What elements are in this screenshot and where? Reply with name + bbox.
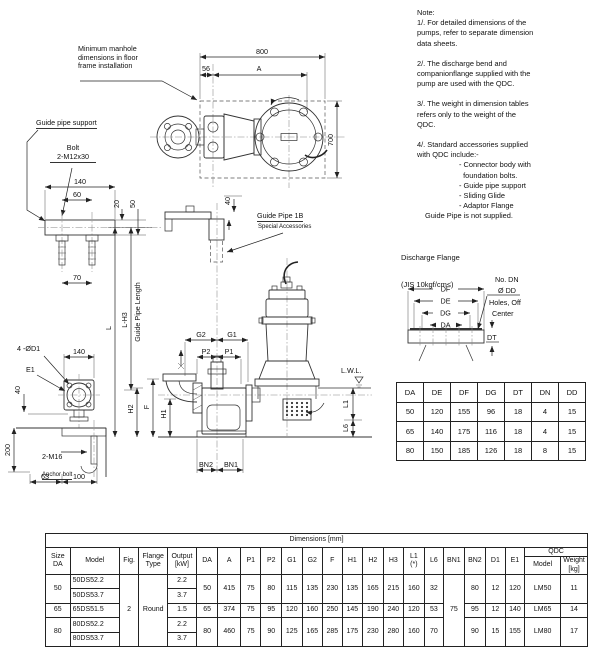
col-header: P1 — [240, 548, 261, 575]
cell: 185 — [451, 441, 478, 461]
col-header: A — [218, 548, 241, 575]
cell-model: 50DS52.2 — [70, 574, 119, 589]
col-header-output: Output [kW] — [168, 548, 197, 575]
cell: 165 — [363, 574, 384, 603]
dim-p2: P2 — [202, 347, 211, 356]
cell: 415 — [218, 574, 241, 603]
cell-output: 3.7 — [168, 589, 197, 604]
dim-200: 200 — [3, 444, 12, 456]
table-row: 50 50DS52.2 2 Round 2.2 50 415 75 80 115… — [46, 574, 588, 589]
cell: 80 — [397, 441, 424, 461]
cell: 250 — [323, 603, 343, 618]
cell: 120 — [505, 574, 525, 603]
cell: 75 — [240, 603, 261, 618]
guide-pipe-support-view: 140 60 70 20 50 — [38, 177, 162, 283]
col-header-model: Model — [70, 548, 119, 575]
dim-f: F — [142, 404, 151, 409]
cell-size: 80 — [46, 618, 71, 647]
col-header: DA — [196, 548, 218, 575]
dim-a: A — [257, 64, 262, 73]
cell: 175 — [342, 618, 363, 647]
dim-l: L — [104, 326, 113, 330]
cell: 285 — [323, 618, 343, 647]
col-header-size: Size DA — [46, 548, 71, 575]
col-header: H2 — [363, 548, 384, 575]
flange-dim-dg: DG — [440, 309, 451, 318]
col-header: BN1 — [444, 548, 465, 575]
cell: 374 — [218, 603, 241, 618]
flange-subtitle: (JIS 10kgf/cm≤) — [401, 280, 460, 289]
note-accessory-3: - Sliding Glide — [459, 191, 597, 201]
anchor-bolt-label: 2-M16 Anchor bolt — [34, 444, 72, 489]
cell-bn1: 75 — [444, 574, 465, 647]
cell: 80 — [261, 574, 282, 603]
cell: 240 — [383, 603, 404, 618]
col-header: G2 — [302, 548, 323, 575]
dim-40-plate: 40 — [13, 386, 22, 394]
cell-weight: 11 — [561, 574, 588, 603]
col-header-qdc-weight: Weight [kg] — [561, 557, 588, 575]
dim-h2: H2 — [126, 404, 135, 413]
flange-table: DA DE DF DG DT DN DD 50 120 155 96 18 4 … — [396, 382, 586, 461]
dim-bn1: BN1 — [224, 460, 238, 469]
cell-output: 1.5 — [168, 603, 197, 618]
cell: 50 — [196, 574, 218, 603]
cell: 135 — [342, 574, 363, 603]
cell: 120 — [404, 603, 425, 618]
cell: 230 — [323, 574, 343, 603]
plan-view: 800 56 A 700 — [150, 47, 345, 188]
col-header-qdc-model: Model — [525, 557, 561, 575]
flange-col-header: DN — [532, 383, 559, 403]
dim-l1: L1 — [341, 400, 350, 408]
lwl-label: L.W.L. — [341, 366, 361, 375]
cell: 95 — [261, 603, 282, 618]
guide-pipe-support-text: Guide pipe support — [36, 119, 97, 129]
cell-flange-type: Round — [139, 574, 168, 647]
dim-h1: H1 — [159, 409, 168, 418]
col-header: P2 — [261, 548, 282, 575]
col-header: F — [323, 548, 343, 575]
water-level: L.W.L. L1 L6 — [318, 366, 371, 437]
dim-800: 800 — [256, 47, 268, 56]
note-4: 4/. Standard accessories supplied with Q… — [417, 140, 597, 160]
cell: 140 — [505, 603, 525, 618]
flange-col-header: DE — [424, 383, 451, 403]
table-title-row: Dimensions [mm] — [46, 534, 588, 548]
dim-20: 20 — [112, 200, 121, 208]
cell: 75 — [240, 618, 261, 647]
guide-pipe-support-label: Guide pipe support — [36, 119, 97, 129]
cell: 155 — [505, 618, 525, 647]
note-3: 3/. The weight in dimension tables refer… — [417, 99, 597, 130]
cell: 4 — [532, 402, 559, 422]
dim-p1: P1 — [225, 347, 234, 356]
flange-dim-dt: DT — [487, 333, 497, 342]
cell: 80 — [464, 574, 486, 603]
flange-title-block: Discharge Flange (JIS 10kgf/cm≤) — [401, 235, 460, 307]
dim-50: 50 — [128, 200, 137, 208]
strainer-holes — [286, 402, 308, 416]
flange-table-row: 50 120 155 96 18 4 15 — [397, 402, 586, 422]
cell-size: 50 — [46, 574, 71, 603]
dim-140-support: 140 — [74, 177, 86, 186]
flange-note-line3: Holes, Off — [489, 298, 521, 307]
cell: 280 — [383, 618, 404, 647]
bolt-label: Bolt 2-M12x30 — [50, 144, 96, 163]
guide-pipe-1b-text: Guide Pipe 1B — [257, 212, 303, 222]
cell-model: 80DS53.7 — [70, 632, 119, 647]
cell: 160 — [404, 618, 425, 647]
flange-table-row: 65 140 175 116 18 4 15 — [397, 422, 586, 442]
cell: 160 — [302, 603, 323, 618]
dim-140-plate: 140 — [73, 347, 85, 356]
dim-g1: G1 — [227, 330, 237, 339]
flange-note-line1: No. DN — [495, 275, 519, 284]
dim-56: 56 — [202, 64, 210, 73]
dimensions-table: Dimensions [mm] Size DA Model Fig. Flang… — [45, 533, 588, 647]
cell: 65 — [196, 603, 218, 618]
cell: 126 — [478, 441, 505, 461]
note-accessory-1: - Connector body with foundation bolts. — [459, 160, 597, 180]
cell: 18 — [505, 441, 532, 461]
flange-col-header: DA — [397, 383, 424, 403]
cell: 12 — [486, 574, 506, 603]
cell: 190 — [363, 603, 384, 618]
col-header: H1 — [342, 548, 363, 575]
pump-side-view — [252, 258, 324, 436]
cell: 15 — [559, 422, 586, 442]
cell: 15 — [559, 402, 586, 422]
flange-col-header: DG — [478, 383, 505, 403]
cell: 8 — [532, 441, 559, 461]
dim-l6: L6 — [341, 424, 350, 432]
cell: 90 — [261, 618, 282, 647]
guide-pipe-length-label: Guide Pipe Length — [133, 282, 142, 342]
flange-table-row: 80 150 185 126 18 8 15 — [397, 441, 586, 461]
cell: 18 — [505, 422, 532, 442]
col-header: D1 — [486, 548, 506, 575]
four-od1-label: 4 -ØD1 — [17, 345, 40, 354]
cell-qdc-model: LM50 — [525, 574, 561, 603]
cell-model: 65DS51.5 — [70, 603, 119, 618]
manhole-note: Minimum manhole dimensions in floor fram… — [78, 45, 170, 71]
dim-l-h3: L-H3 — [120, 312, 129, 328]
table-title: Dimensions [mm] — [46, 534, 588, 548]
cell-model: 80DS52.2 — [70, 618, 119, 633]
dim-70: 70 — [73, 273, 81, 282]
cell-output: 2.2 — [168, 618, 197, 633]
cell: 18 — [505, 402, 532, 422]
cell: 116 — [478, 422, 505, 442]
cell-weight: 17 — [561, 618, 588, 647]
cell: 32 — [424, 574, 444, 603]
cell: 165 — [302, 618, 323, 647]
cell: 4 — [532, 422, 559, 442]
cell: 175 — [451, 422, 478, 442]
dim-g2: G2 — [196, 330, 206, 339]
table-header-row: Size DA Model Fig. Flange Type Output [k… — [46, 548, 588, 557]
cell: 460 — [218, 618, 241, 647]
cell: 120 — [424, 402, 451, 422]
cell-fig: 2 — [119, 574, 139, 647]
col-header-flange-type: Flange Type — [139, 548, 168, 575]
dim-40-pipe: 40 — [223, 197, 232, 205]
note-accessory-2: - Guide pipe support — [459, 181, 597, 191]
col-header: G1 — [282, 548, 303, 575]
cell: 70 — [424, 618, 444, 647]
note-2: 2/. The discharge bend and companionflan… — [417, 59, 597, 90]
cell: 115 — [282, 574, 303, 603]
special-accessories-label: Special Accessories — [258, 224, 311, 231]
flange-col-header: DD — [559, 383, 586, 403]
dim-100: 100 — [73, 472, 85, 481]
col-header-qdc: QDC — [525, 548, 588, 557]
cell: 160 — [404, 574, 425, 603]
notes-block: Note: 1/. For detailed dimensions of the… — [417, 8, 597, 222]
leader-lines — [27, 81, 283, 452]
cell-qdc-model: LM65 — [525, 603, 561, 618]
cell: 15 — [486, 618, 506, 647]
col-header-fig: Fig. — [119, 548, 139, 575]
cell-weight: 14 — [561, 603, 588, 618]
flange-col-header: DF — [451, 383, 478, 403]
cell: 90 — [464, 618, 486, 647]
cell: 15 — [559, 441, 586, 461]
cell: 75 — [240, 574, 261, 603]
anchor-bolt-text: Anchor bolt — [42, 472, 72, 481]
cell: 50 — [397, 402, 424, 422]
section-view: G2 G1 P2 P1 H2 F — [126, 330, 372, 473]
cell-size: 65 — [46, 603, 71, 618]
cell-model: 50DS53.7 — [70, 589, 119, 604]
cell: 80 — [196, 618, 218, 647]
cell: 120 — [282, 603, 303, 618]
note-1: 1/. For detailed dimensions of the pumps… — [417, 18, 597, 49]
dim-700: 700 — [326, 134, 335, 146]
col-header: L1 (*) — [404, 548, 425, 575]
cell: 12 — [486, 603, 506, 618]
flange-note-line2: Ø DD — [498, 286, 516, 295]
cell: 135 — [302, 574, 323, 603]
cell: 65 — [397, 422, 424, 442]
cell: 215 — [383, 574, 404, 603]
col-header: L6 — [424, 548, 444, 575]
col-header: E1 — [505, 548, 525, 575]
flange-table-header-row: DA DE DF DG DT DN DD — [397, 383, 586, 403]
cell: 230 — [363, 618, 384, 647]
cell: 145 — [342, 603, 363, 618]
guide-pipe-1b-label: Guide Pipe 1B — [257, 212, 303, 222]
cell: 150 — [424, 441, 451, 461]
dim-60: 60 — [73, 190, 81, 199]
note-footer: Guide Pipe is not supplied. — [425, 211, 597, 221]
dim-bn2: BN2 — [199, 460, 213, 469]
flange-note-line4: Center — [492, 309, 514, 318]
datasheet-page: 800 56 A 700 — [0, 0, 600, 660]
e1-label: E1 — [26, 366, 35, 375]
cell-output: 2.2 — [168, 574, 197, 589]
cell: 125 — [282, 618, 303, 647]
flange-title: Discharge Flange — [401, 253, 460, 262]
col-header: BN2 — [464, 548, 486, 575]
col-header: H3 — [383, 548, 404, 575]
cell: 96 — [478, 402, 505, 422]
note-accessory-4: - Adaptor Flange — [459, 201, 597, 211]
m16-text: 2-M16 — [42, 452, 62, 461]
cell: 95 — [464, 603, 486, 618]
cell: 140 — [424, 422, 451, 442]
cell: 53 — [424, 603, 444, 618]
cell-qdc-model: LM80 — [525, 618, 561, 647]
cell-output: 3.7 — [168, 632, 197, 647]
cell: 155 — [451, 402, 478, 422]
flange-col-header: DT — [505, 383, 532, 403]
note-title: Note: — [417, 8, 597, 18]
